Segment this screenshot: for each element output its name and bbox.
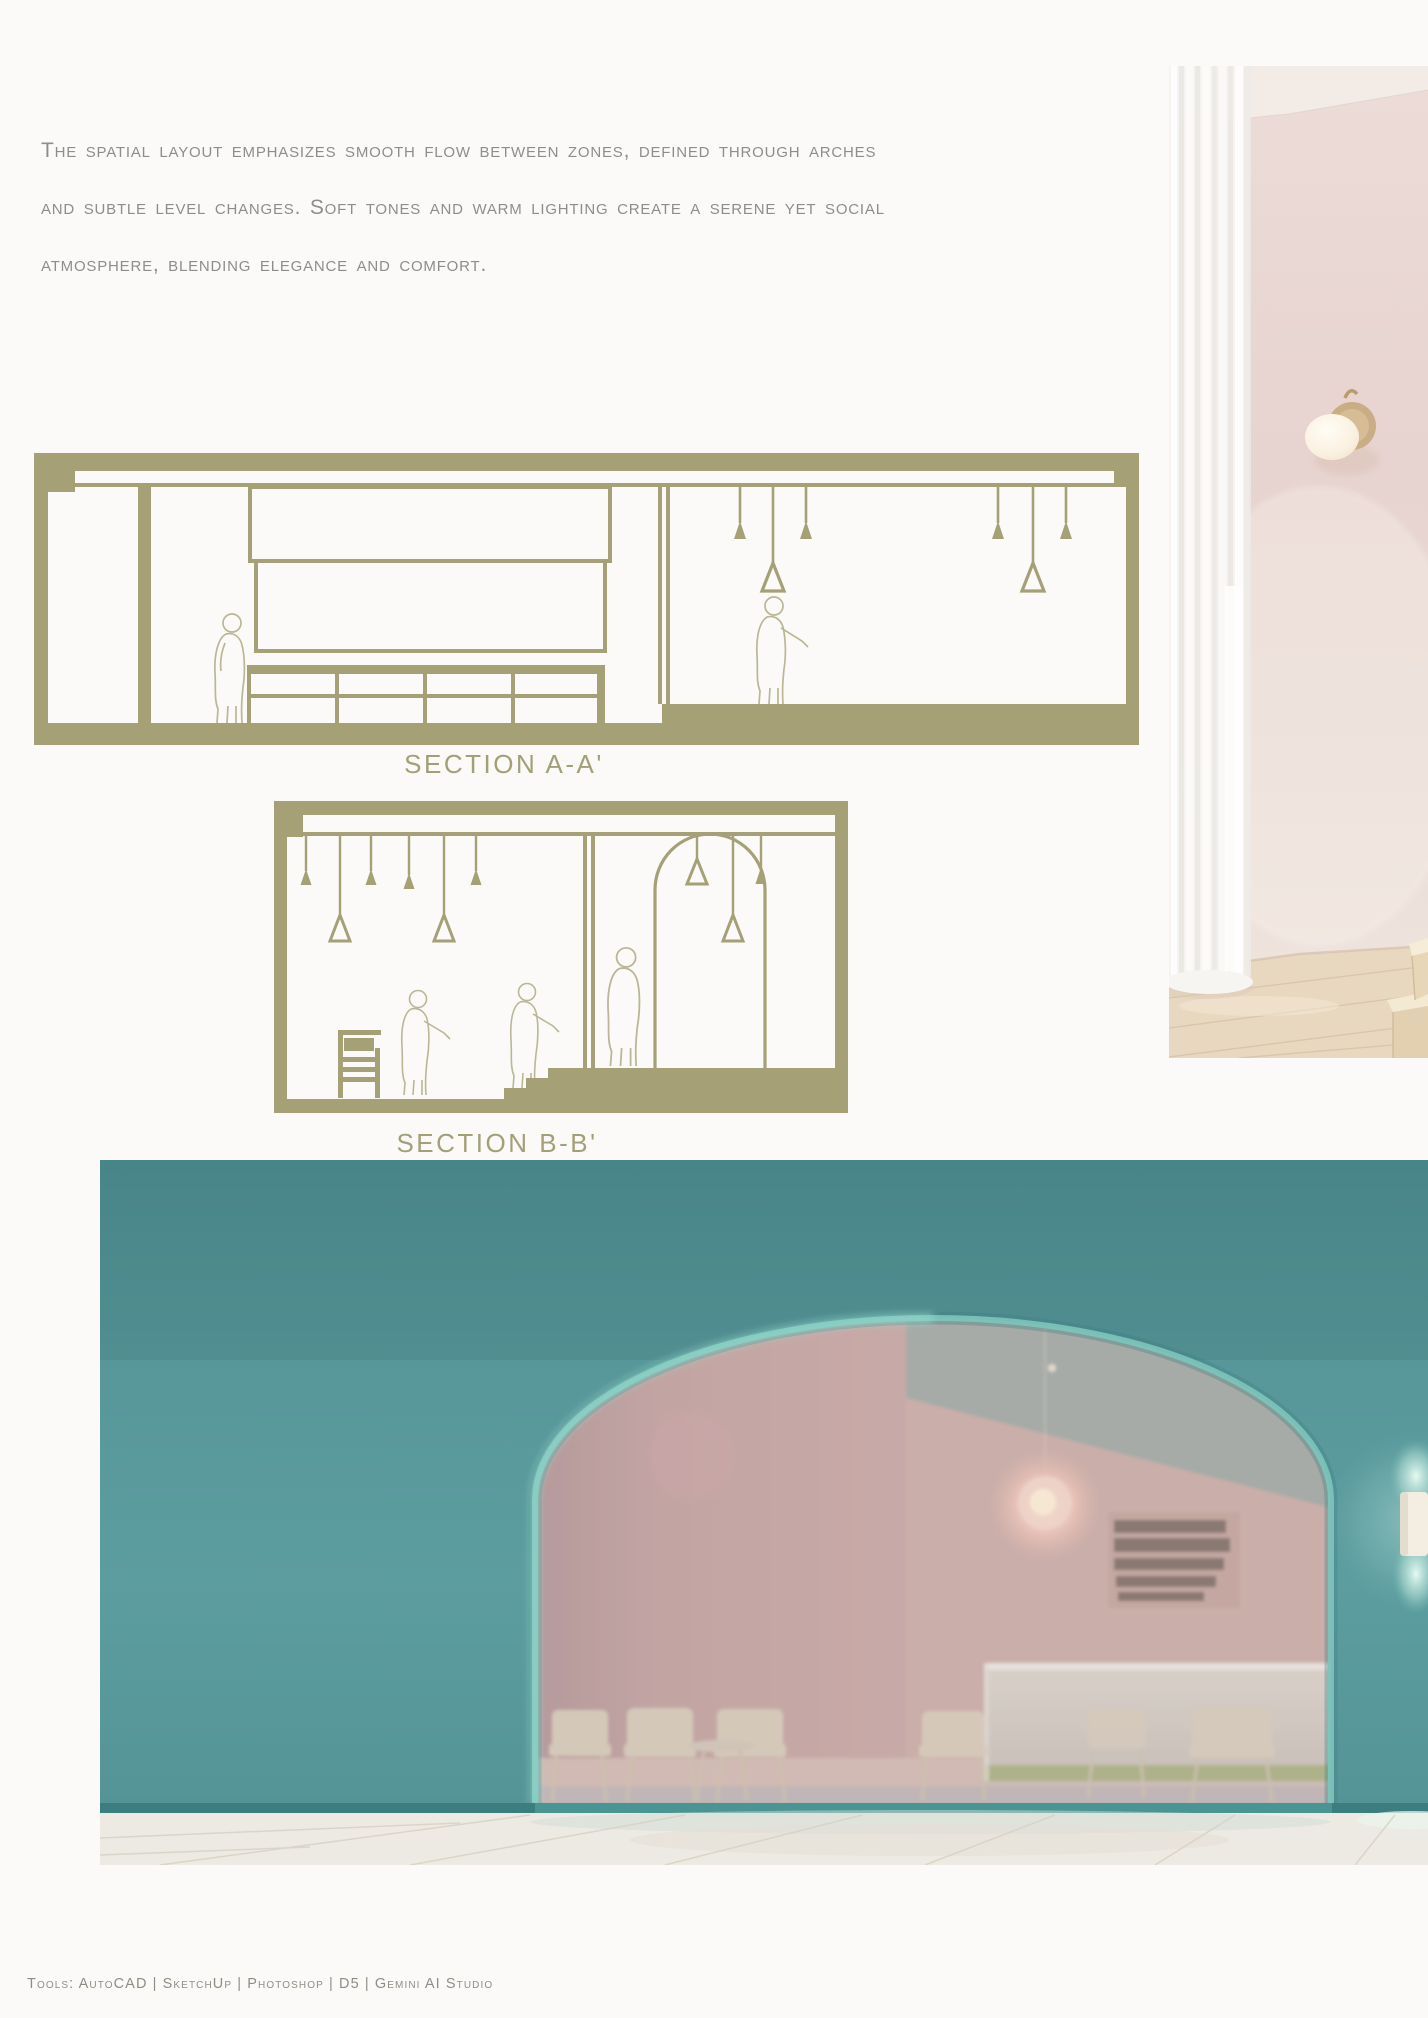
render-facade xyxy=(100,1160,1428,1865)
intro-line-2: and subtle level changes. Soft tones and… xyxy=(41,179,961,236)
section-aa-structure xyxy=(34,453,1139,745)
human-figure-right xyxy=(608,948,639,1066)
pendant-lights-left xyxy=(301,836,482,941)
wall-right xyxy=(835,801,848,1113)
section-bb-drawing xyxy=(274,801,848,1113)
wall-left xyxy=(34,453,48,745)
pendant-lights-right xyxy=(687,836,767,941)
sheer-curtain xyxy=(1169,66,1253,994)
outside-floor xyxy=(100,1810,1428,1865)
ceiling-band xyxy=(34,453,1139,471)
section-aa-label: SECTION A-A' xyxy=(304,749,704,780)
intro-line-3: atmosphere, blending elegance and comfor… xyxy=(41,236,961,293)
wall-left xyxy=(274,801,287,1113)
intro-paragraph: The spatial layout emphasizes smooth flo… xyxy=(41,122,961,293)
raised-platform xyxy=(548,1068,835,1099)
section-bb-label: SECTION B-B' xyxy=(297,1128,697,1159)
footer-tools: Tools: AutoCAD | SketchUp | Photoshop | … xyxy=(27,1976,493,1992)
human-figure-left xyxy=(402,991,450,1096)
ceiling-band xyxy=(274,801,848,815)
floor-band xyxy=(34,723,1139,745)
ceiling-line xyxy=(303,832,835,836)
pendant-lights-group-2 xyxy=(992,487,1072,591)
interior-post xyxy=(138,487,151,723)
step-2 xyxy=(526,1078,549,1099)
step-1 xyxy=(504,1088,527,1099)
bench-seating xyxy=(247,665,605,723)
section-aa-drawing xyxy=(34,453,1139,745)
raised-floor xyxy=(662,704,1126,724)
floor-band xyxy=(274,1099,848,1113)
photo-interior xyxy=(1169,66,1428,1058)
soffit-boxes xyxy=(250,487,610,651)
arch-outline xyxy=(655,834,765,1068)
chair xyxy=(338,1030,381,1098)
cafe-interior xyxy=(535,1308,1332,1805)
wall-right xyxy=(1126,453,1139,745)
intro-line-1: The spatial layout emphasizes smooth flo… xyxy=(41,122,961,179)
human-figure-left xyxy=(215,614,245,723)
human-figure-right xyxy=(757,597,808,704)
pendant-lights-group-1 xyxy=(734,487,812,591)
